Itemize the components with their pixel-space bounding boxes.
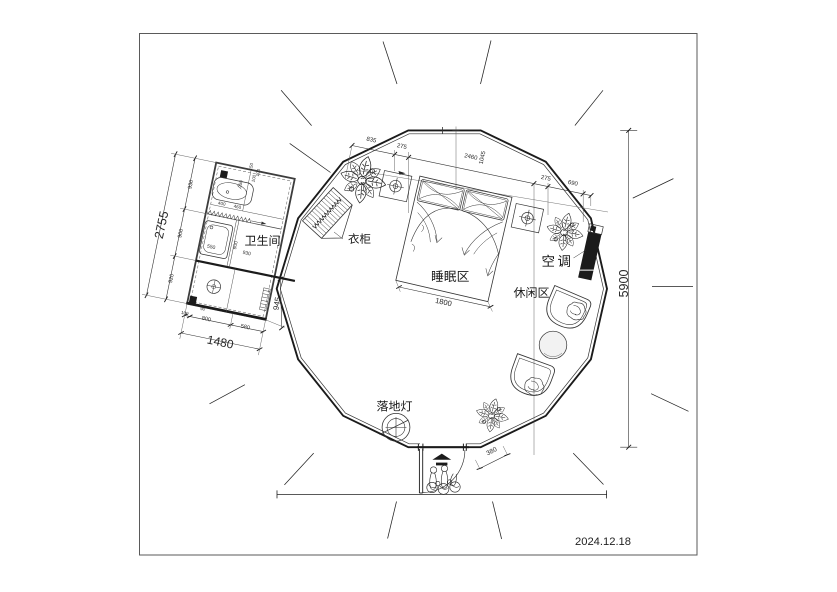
svg-text:2024.12.18: 2024.12.18 [575, 536, 631, 548]
svg-text:5900: 5900 [617, 270, 631, 298]
